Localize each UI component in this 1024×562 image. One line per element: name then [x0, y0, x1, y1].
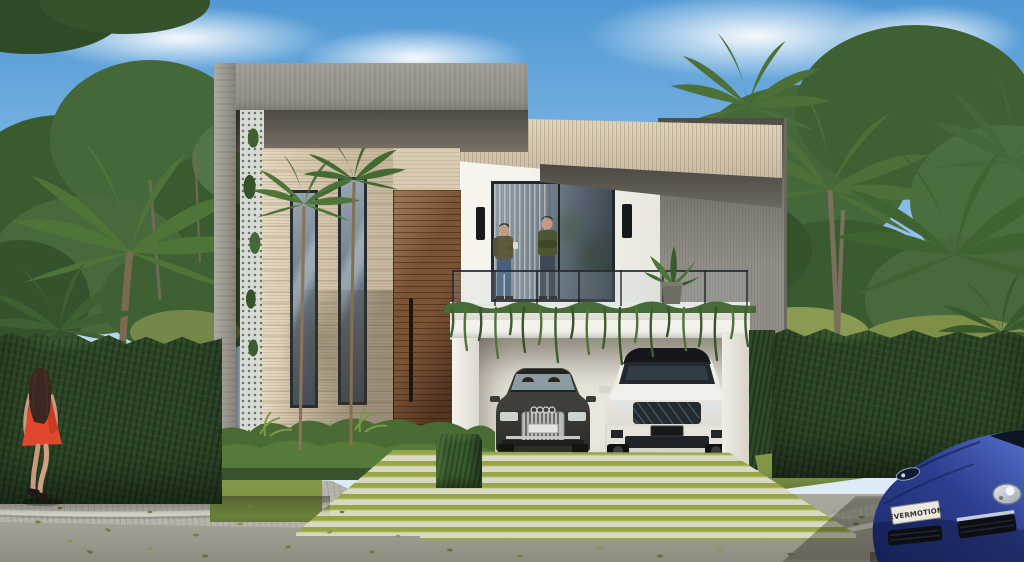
- wall-sconce-light: [622, 204, 632, 238]
- villa-render-scene: EVERMOTION: [0, 0, 1024, 562]
- woman-in-red-dress: [12, 360, 76, 510]
- blue-sports-car: EVERMOTION: [870, 430, 1024, 562]
- concrete-frame-reveal: [234, 110, 528, 152]
- hanging-vines: [444, 296, 756, 372]
- wall-sconce-light: [476, 207, 485, 240]
- courtyard-palms: [230, 148, 470, 484]
